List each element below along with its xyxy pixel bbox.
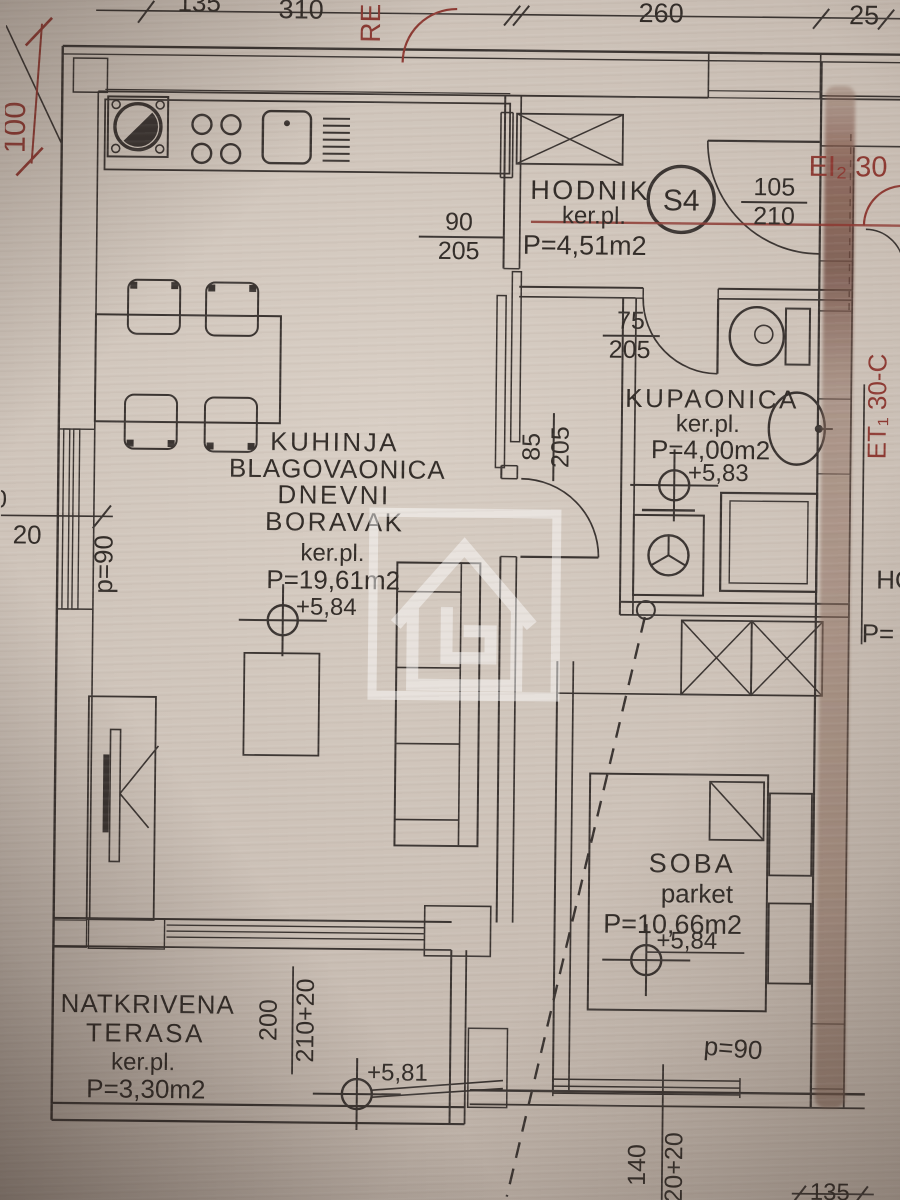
terrace-area: P=3,30m2: [86, 1073, 206, 1104]
toilet-icon: [729, 307, 810, 366]
floorplan-photo: 135 310 260 25 0 20 p=90 HODNIK ker.pl. …: [0, 0, 900, 1200]
closet-icon-hodnik: [500, 113, 623, 179]
terrace-name-2: TERASA: [86, 1017, 205, 1048]
hob-icon: [192, 115, 241, 164]
window-soba: [553, 1076, 740, 1098]
hodnik-area: P=4,51m2: [523, 230, 647, 261]
neighbor-text-2: P=: [862, 618, 895, 648]
terrace-slider: [166, 925, 424, 940]
terrace-floor: ker.pl.: [111, 1048, 175, 1076]
entry-door-w: 105: [753, 173, 795, 201]
coffee-table-icon: [243, 653, 319, 756]
dim-25: 25: [849, 0, 879, 30]
wall-terrace-top: [53, 902, 490, 957]
soba-name: SOBA: [649, 848, 736, 879]
unit-tag: S4: [663, 184, 700, 217]
hodnik-floor: ker.pl.: [562, 202, 626, 230]
dining-chair-icon: [125, 280, 259, 452]
dim-left-cut: 0: [0, 485, 7, 513]
soba-window-dim-a: 140: [623, 1144, 651, 1186]
boiler-icon: [108, 96, 169, 157]
watermark-logo: [372, 512, 557, 697]
fire-label-et: ET₁ 30-C: [861, 354, 892, 460]
living-floor: ker.pl.: [300, 539, 364, 567]
soba-level: +5,84: [656, 927, 717, 955]
watermark-house-spiral: [446, 607, 491, 658]
terrace-dim-b: 210+20: [291, 978, 320, 1062]
soba-parapet: p=90: [703, 1031, 764, 1066]
entry-door-h: 210: [753, 202, 795, 230]
watermark-house-body: [412, 607, 517, 686]
dishrack-icon: [323, 119, 350, 161]
dim-310: 310: [278, 0, 323, 25]
drain-icon: [637, 601, 655, 619]
projection-dashed-line: [507, 616, 645, 1198]
red-dim-100: 100: [0, 101, 32, 153]
soba-window-dim-b: 620+20: [660, 1132, 689, 1200]
tv-icon: [87, 696, 159, 920]
soba-dim-135: 135: [810, 1179, 850, 1200]
bath-level: +5,83: [688, 459, 749, 487]
living-door-h: 205: [438, 237, 480, 265]
wall-bath-top: [519, 287, 852, 300]
dim-top-cut: 135: [177, 0, 221, 18]
hodnik-name: HODNIK: [530, 175, 650, 206]
bath-door-h: 205: [609, 336, 651, 364]
living-level: +5,84: [296, 593, 357, 621]
fire-label-rei: RE: [355, 4, 386, 43]
wardrobe-icon: [681, 620, 823, 695]
dim-left-20: 20: [13, 519, 42, 549]
living-door-w: 90: [445, 208, 473, 236]
bath-door-w: 75: [617, 307, 645, 335]
soba-floor: parket: [661, 878, 734, 909]
dim-260: 260: [638, 0, 683, 28]
living-area: P=19,61m2: [266, 564, 400, 595]
sink-icon: [263, 111, 312, 163]
washing-machine-icon: [633, 510, 704, 596]
terrace-level: +5,81: [367, 1059, 428, 1087]
window-living-left: [62, 429, 80, 609]
shower-icon: [720, 493, 817, 592]
terrace-name-1: NATKRIVENA: [60, 988, 235, 1020]
floorplan-drawing: 135 310 260 25 0 20 p=90 HODNIK ker.pl. …: [0, 0, 900, 1200]
soba-door-h: 205: [546, 426, 574, 468]
soba-door-w: 85: [517, 433, 545, 461]
fire-label-ei: EI₂ 30: [808, 151, 887, 184]
nightstand-icon: [768, 903, 811, 983]
dining-table-icon: [95, 314, 281, 423]
terrace-dim-a: 200: [254, 999, 282, 1041]
parapet-left: p=90: [88, 535, 119, 594]
wall-hatch-topleft: [73, 58, 107, 92]
neighbor-text-1: HO: [876, 564, 900, 594]
nightstand-icon: [769, 793, 812, 875]
